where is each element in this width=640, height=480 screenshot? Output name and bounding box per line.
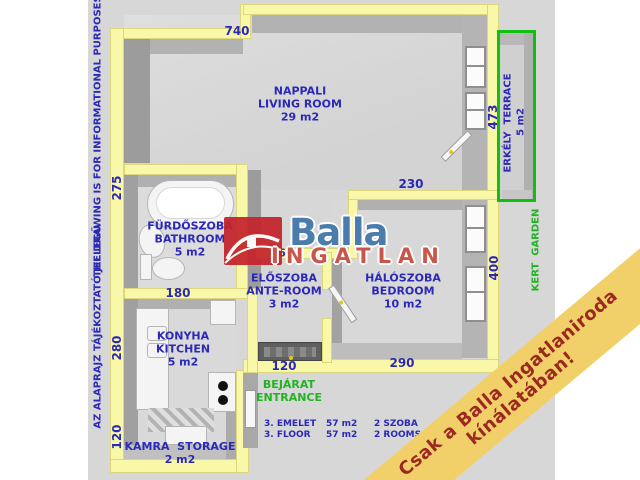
kitchen-label-hu: KONYHA <box>156 330 210 343</box>
terrace-area: 5 m2 <box>516 108 527 136</box>
window <box>465 46 486 88</box>
floor-info-table: 3. EMELET 57 m2 2 SZOBA 3. FLOOR 57 m2 2… <box>264 419 436 441</box>
window <box>465 92 486 130</box>
anteroom-label-hu: ELŐSZOBA <box>246 272 321 285</box>
bathroom-area: 5 m2 <box>147 246 233 259</box>
window <box>465 266 486 322</box>
garden-label: KERT GARDEN <box>531 209 542 292</box>
wall-segment <box>243 4 499 15</box>
wall-segment <box>110 28 124 473</box>
anteroom-label: ELŐSZOBA ANTE-ROOM 3 m2 <box>246 272 321 311</box>
dim-top-width: 740 <box>224 24 249 38</box>
terrace-label: ERKÉLY TERRACE <box>503 73 514 172</box>
dim-right-lower: 400 <box>487 255 501 280</box>
anteroom-area: 3 m2 <box>246 298 321 311</box>
storage-label: KAMRA STORAGE 2 m2 <box>125 440 236 466</box>
dim-kitchen-height: 280 <box>110 335 124 360</box>
kitchen-label: KONYHA KITCHEN 5 m2 <box>156 330 210 369</box>
info-floor-hu: 3. EMELET <box>264 419 326 430</box>
terrace-label-hu: ERKÉLY <box>503 131 514 172</box>
bathroom-label-hu: FÜRDŐSZOBA <box>147 220 233 233</box>
bathtub-inner <box>156 187 225 219</box>
entrance-label-hu: BEJÁRAT <box>256 378 322 391</box>
dim-right-upper: 473 <box>486 104 500 129</box>
window-mullion <box>467 291 484 293</box>
garden-label-hu: KERT <box>531 263 542 292</box>
dim-bathroom-height: 275 <box>110 175 124 200</box>
stove <box>208 372 236 412</box>
kitchen-label-en: KITCHEN <box>156 343 210 356</box>
bedroom-label-hu: HÁLÓSZOBA <box>365 272 441 285</box>
anteroom-label-en: ANTE-ROOM <box>246 285 321 298</box>
wall-segment <box>124 164 243 175</box>
info-size-en: 57 m2 <box>326 430 374 441</box>
disclaimer-hu: AZ ALAPRAJZ TÁJÉKOZTATÓ JELLEGŰ <box>93 225 104 428</box>
storage-area: 2 m2 <box>125 453 236 466</box>
living-room-label: NAPPALI LIVING ROOM 29 m2 <box>258 85 342 124</box>
door-handle <box>338 300 344 306</box>
wall-face <box>358 200 462 210</box>
kitchen-area: 5 m2 <box>156 356 210 369</box>
kitchen-cabinet <box>210 300 236 325</box>
wall-segment <box>348 190 499 200</box>
bathroom-label-en: BATHROOM <box>147 233 233 246</box>
window-mullion <box>467 109 484 111</box>
stove-burner <box>218 395 228 405</box>
dim-entrance-width: 120 <box>271 359 296 373</box>
stairwell-door <box>245 390 256 428</box>
wall-face <box>124 39 150 163</box>
bedroom-area: 10 m2 <box>365 298 441 311</box>
storage-label-line: KAMRA STORAGE <box>125 440 236 453</box>
wall-segment <box>322 318 332 363</box>
wall-face <box>502 190 532 199</box>
garden-label-en: GARDEN <box>531 209 542 256</box>
storage-label-hu: KAMRA <box>125 440 170 453</box>
living-label-en: LIVING ROOM <box>258 98 342 111</box>
toilet-bowl <box>152 257 185 280</box>
terrace-label-en: TERRACE <box>503 73 514 124</box>
entrance-label-en: ENTRANCE <box>256 391 322 404</box>
storage-label-en: STORAGE <box>177 440 235 453</box>
dim-storage-height: 120 <box>110 424 124 449</box>
wall-face <box>252 15 462 33</box>
living-area: 29 m2 <box>258 111 342 124</box>
floor-plan-page: THE DRAWING IS FOR INFORMATIONAL PURPOSE… <box>0 0 640 480</box>
bedroom-label: HÁLÓSZOBA BEDROOM 10 m2 <box>365 272 441 311</box>
bathroom-label: FÜRDŐSZOBA BATHROOM 5 m2 <box>147 220 233 259</box>
wall-face <box>124 175 138 288</box>
living-label-hu: NAPPALI <box>258 85 342 98</box>
window <box>465 205 486 253</box>
dim-bedroom-width: 290 <box>389 356 414 370</box>
logo-sub-text: INGATLAN <box>271 244 446 268</box>
stove-burner <box>218 381 228 391</box>
window-mullion <box>467 227 484 229</box>
dim-living-bedroom: 230 <box>398 177 423 191</box>
info-floor-en: 3. FLOOR <box>264 430 326 441</box>
dim-bathroom-width: 180 <box>165 286 190 300</box>
entrance-label: BEJÁRAT ENTRANCE <box>256 378 322 404</box>
window-mullion <box>467 65 484 67</box>
bedroom-label-en: BEDROOM <box>365 285 441 298</box>
door-handle <box>448 149 454 155</box>
info-size-hu: 57 m2 <box>326 419 374 430</box>
